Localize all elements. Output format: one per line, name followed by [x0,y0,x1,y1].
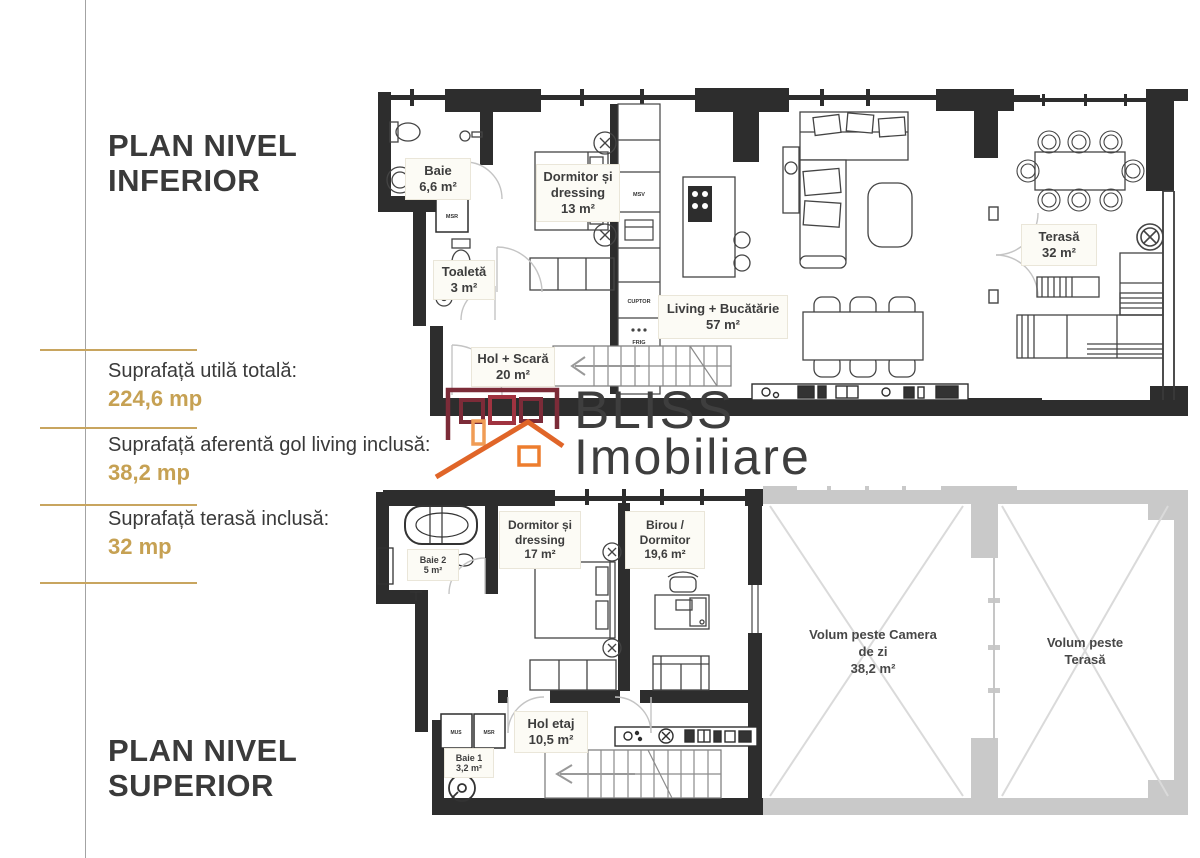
stat-value: 224,6 mp [108,386,297,412]
kitchen-counter [752,384,968,400]
gold-divider-2 [40,427,197,429]
appliance-label-cuptor: CUPTOR [627,299,650,305]
label-volum-camera-de-zi: Volum peste Camera de zi 38,2 m² [800,627,946,678]
appliance-label-msv: MSV [633,192,645,198]
appliance-label-frig: FRIG [632,340,645,346]
stat-suprafata-utila: Suprafață utilă totală: 224,6 mp [108,360,297,412]
room-label-birou: Birou / Dormitor 19,6 m² [625,511,705,569]
ceiling-fan-icon [1137,224,1163,250]
hol-vanity [615,727,757,746]
room-label-dormitor-17: Dormitor și dressing 17 m² [499,511,581,569]
stat-value: 38,2 mp [108,460,430,486]
kitchen-island [683,177,750,277]
room-label-dormitor-13: Dormitor și dressing 13 m² [536,164,620,222]
room-label-terasa: Terasă 32 m² [1021,224,1097,266]
stat-suprafata-terasa: Suprafață terasă inclusă: 32 mp [108,508,329,560]
gold-divider-4 [40,582,197,584]
living-sofa [783,112,912,268]
title-plan-superior: PLAN NIVEL SUPERIOR [108,733,323,804]
svg-text:MSR: MSR [446,214,458,220]
stairs-upper [553,346,731,386]
birou-window [748,585,762,633]
stat-value: 32 mp [108,534,329,560]
birou-furniture [653,572,709,690]
stairs-lower [545,750,721,798]
room-label-baie1: Baie 1 3,2 m² [444,748,494,778]
floor-plan-page: MSV CUPTOR FRIG MSR [0,0,1200,858]
stat-suprafata-gol-living: Suprafață aferentă gol living inclusă: 3… [108,434,430,486]
gold-divider-1 [40,349,197,351]
room-label-baie2: Baie 2 5 m² [407,549,459,581]
stat-label: Suprafață terasă inclusă: [108,508,329,531]
laundry-boxes: MUS MSR [441,714,505,748]
baie1-shower [449,775,475,801]
room-label-toaleta: Toaletă 3 m² [433,260,495,300]
logo-text-imobiliare: Imobiliare [574,432,811,482]
room-label-living: Living + Bucătărie 57 m² [658,295,788,339]
stat-label: Suprafață aferentă gol living inclusă: [108,434,430,457]
room-label-baie: Baie 6,6 m² [405,158,471,200]
label-volum-terasa: Volum peste Terasă [1025,635,1145,669]
dining-set [803,297,923,377]
svg-text:MUS: MUS [450,730,462,736]
upper-terrace-railing [1163,191,1174,400]
gold-divider-3 [40,504,197,506]
svg-text:MSR: MSR [483,730,495,736]
room-label-hol-etaj: Hol etaj 10,5 m² [514,711,588,753]
washer-box: MSR [436,198,468,232]
title-plan-inferior: PLAN NIVEL INFERIOR [108,128,323,199]
room-label-hol-scara: Hol + Scară 20 m² [471,347,555,387]
stat-label: Suprafață utilă totală: [108,360,297,383]
